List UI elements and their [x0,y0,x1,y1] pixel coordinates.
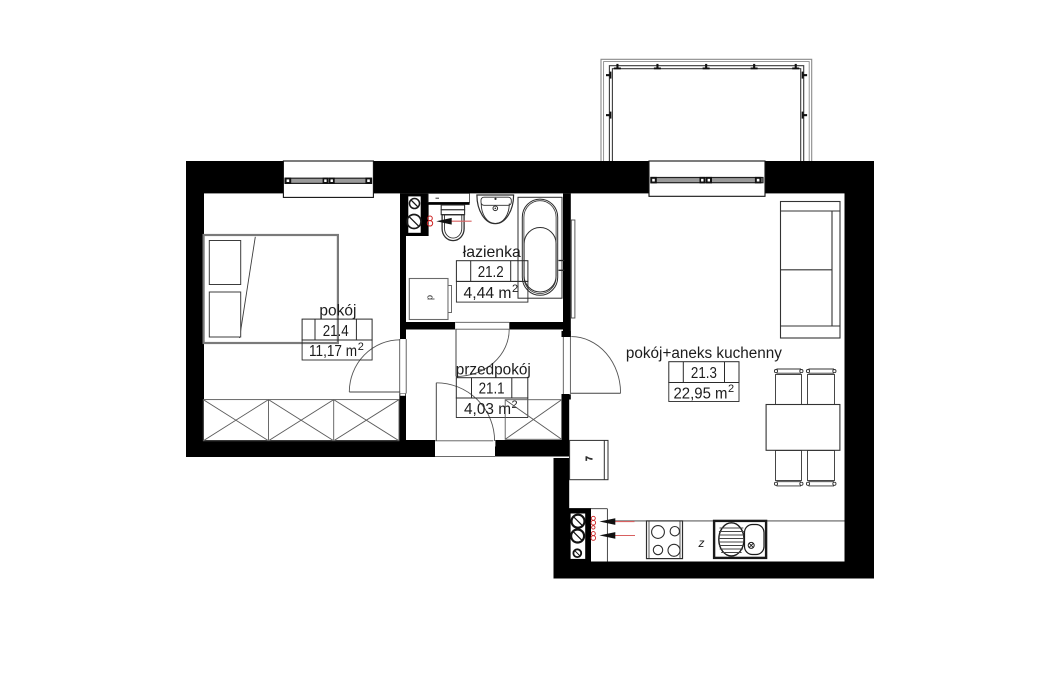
svg-text:21.4: 21.4 [323,323,349,340]
svg-text:4,44 m: 4,44 m [464,285,512,302]
svg-text:4,03 m: 4,03 m [464,401,511,418]
svg-text:łazienka: łazienka [463,244,521,261]
svg-text:2: 2 [512,283,518,295]
svg-text:z: z [698,536,705,550]
svg-text:11,17 m: 11,17 m [309,343,357,360]
svg-text:pokój+aneks kuchenny: pokój+aneks kuchenny [626,345,782,362]
svg-text:21.1: 21.1 [479,381,505,398]
svg-text:21.2: 21.2 [478,264,504,281]
svg-text:7: 7 [585,456,594,461]
svg-text:22,95 m: 22,95 m [674,385,728,402]
svg-text:p: p [425,295,435,300]
svg-text:2: 2 [358,341,364,353]
svg-text:przedpokój: przedpokój [456,362,531,379]
svg-text:2: 2 [728,383,734,395]
svg-text:pokój: pokój [319,303,356,320]
svg-text:21.3: 21.3 [691,365,717,382]
